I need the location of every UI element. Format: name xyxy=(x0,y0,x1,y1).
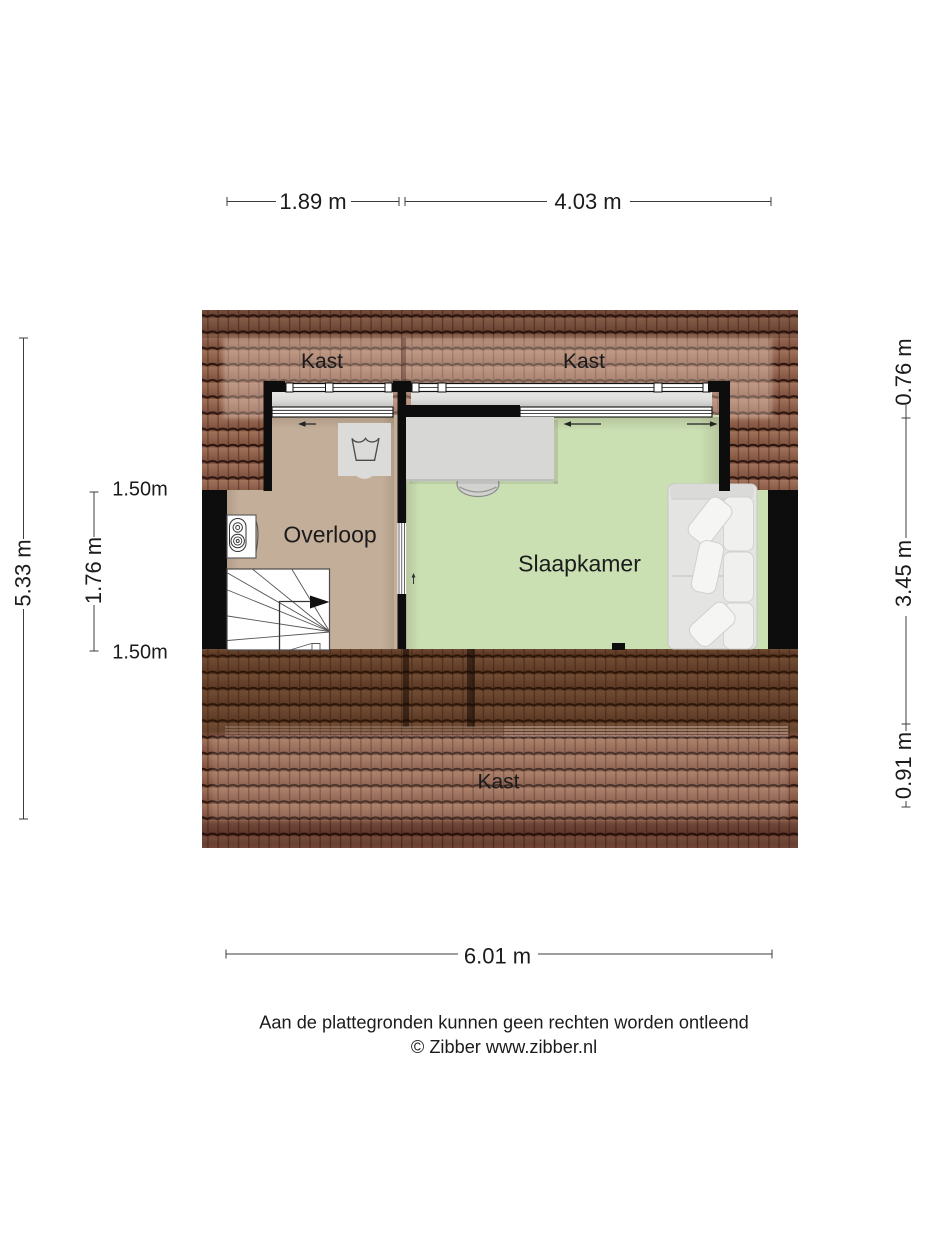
svg-text:Kast: Kast xyxy=(301,350,343,373)
svg-text:Overloop: Overloop xyxy=(283,522,376,548)
svg-text:Kast: Kast xyxy=(477,771,519,794)
svg-text:4.03 m: 4.03 m xyxy=(554,189,621,214)
svg-text:1.76 m: 1.76 m xyxy=(81,537,106,604)
svg-text:© Zibber www.zibber.nl: © Zibber www.zibber.nl xyxy=(411,1037,597,1057)
svg-text:5.33 m: 5.33 m xyxy=(11,539,36,606)
svg-text:3.45 m: 3.45 m xyxy=(891,540,916,607)
svg-text:Slaapkamer: Slaapkamer xyxy=(518,551,641,577)
svg-text:0.91 m: 0.91 m xyxy=(891,732,916,799)
svg-text:1.50m: 1.50m xyxy=(112,642,168,664)
svg-text:0.76 m: 0.76 m xyxy=(891,338,916,405)
svg-text:6.01 m: 6.01 m xyxy=(464,944,531,969)
svg-text:Aan de plattegronden kunnen ge: Aan de plattegronden kunnen geen rechten… xyxy=(259,1013,748,1033)
svg-text:1.50m: 1.50m xyxy=(112,479,168,501)
svg-text:1.89 m: 1.89 m xyxy=(279,189,346,214)
svg-text:Kast: Kast xyxy=(563,350,605,373)
